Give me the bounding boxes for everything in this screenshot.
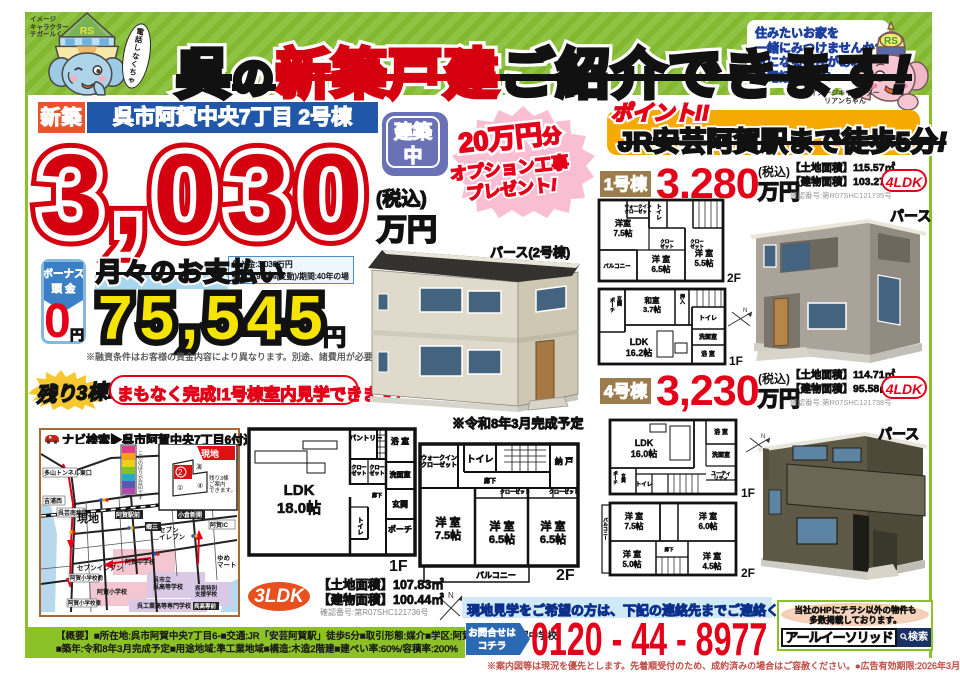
svg-text:ゼット: ゼット (351, 470, 366, 477)
svg-text:クローゼット: クローゼット (500, 489, 530, 496)
svg-text:阿賀小学校前: 阿賀小学校前 (70, 574, 104, 582)
svg-text:多山トンネル東口: 多山トンネル東口 (44, 469, 92, 477)
svg-text:ゼット: ゼット (690, 243, 704, 250)
svg-text:洋 室: 洋 室 (703, 551, 721, 561)
svg-text:ゆめ: ゆめ (217, 554, 231, 562)
svg-text:16.2帖: 16.2帖 (626, 347, 653, 358)
svg-text:クローゼット: クローゼット (549, 489, 579, 496)
svg-text:呉高等学校: 呉高等学校 (153, 583, 184, 591)
svg-text:納 戸: 納 戸 (555, 456, 573, 466)
svg-text:ボーナス: ボーナス (44, 267, 83, 280)
svg-text:現地: 現地 (201, 448, 219, 459)
svg-text:押入: 押入 (679, 293, 685, 305)
svg-text:浴 室: 浴 室 (701, 350, 715, 358)
svg-text:イレブン: イレブン (159, 532, 186, 541)
svg-text:洋 室: 洋 室 (489, 519, 514, 533)
svg-text:LDK: LDK (635, 438, 654, 448)
svg-text:6.5帖: 6.5帖 (651, 264, 670, 274)
svg-text:トイレ: トイレ (356, 517, 363, 535)
svg-text:呉高専前: 呉高専前 (194, 602, 217, 610)
svg-text:こののぼりが目印です: こののぼりが目印です (137, 450, 143, 501)
svg-text:ポーチ: ポーチ (613, 470, 619, 486)
svg-text:セブンイレブン: セブンイレブン (77, 563, 123, 572)
svg-text:バルコニー: バルコニー (603, 263, 631, 270)
svg-text:郷三: 郷三 (146, 523, 158, 531)
svg-text:吉浦西: 吉浦西 (44, 497, 62, 505)
svg-text:2: 2 (178, 468, 183, 477)
svg-text:バルコニー: バルコニー (476, 571, 516, 580)
svg-text:④: ④ (197, 482, 203, 490)
svg-text:マート: マート (217, 561, 237, 569)
svg-text:阿賀駅前: 阿賀駅前 (116, 511, 140, 519)
svg-text:お問合せは: お問合せは (468, 627, 516, 639)
svg-text:洋 室: 洋 室 (699, 511, 717, 521)
svg-text:トイレ: トイレ (636, 481, 653, 488)
svg-text:小倉新開: 小倉新開 (177, 511, 202, 519)
svg-text:呉市立: 呉市立 (153, 576, 171, 584)
svg-text:洋 室: 洋 室 (435, 515, 460, 529)
svg-text:支援学校: 支援学校 (194, 590, 218, 598)
svg-text:コチラ: コチラ (478, 641, 507, 652)
svg-text:LDK: LDK (630, 337, 649, 347)
svg-text:ウォークイン: ウォークイン (421, 454, 457, 462)
svg-text:7.5帖: 7.5帖 (613, 228, 632, 238)
svg-text:6.5帖: 6.5帖 (489, 532, 515, 546)
svg-text:廊下: 廊下 (372, 492, 382, 499)
svg-text:RS: RS (80, 26, 95, 37)
svg-text:バルコニー: バルコニー (603, 518, 609, 541)
svg-text:ゼット: ゼット (660, 243, 674, 250)
svg-text:阿賀中学校: 阿賀中学校 (125, 558, 156, 566)
svg-text:洋 室: 洋 室 (625, 511, 643, 521)
svg-text:浴 室: 浴 室 (714, 428, 728, 436)
svg-text:セブン: セブン (159, 525, 179, 534)
svg-text:洋 室: 洋 室 (652, 254, 670, 264)
svg-text:ポーチ: ポーチ (388, 524, 412, 534)
svg-text:16.0帖: 16.0帖 (631, 448, 658, 459)
svg-text:洋室: 洋室 (615, 218, 631, 228)
svg-text:4.5帖: 4.5帖 (702, 561, 721, 571)
svg-text:クロー: クロー (351, 464, 366, 471)
svg-text:トイレ: トイレ (655, 204, 662, 221)
svg-text:LDK: LDK (284, 482, 315, 499)
svg-text:パントリー: パントリー (350, 433, 383, 442)
svg-text:洗面室: 洗面室 (699, 333, 717, 341)
svg-text:できます。: できます。 (209, 487, 236, 494)
svg-text:N: N (448, 591, 454, 600)
svg-text:洗面室: 洗面室 (712, 451, 730, 459)
svg-text:クロー: クロー (369, 464, 384, 471)
svg-text:残り3棟: 残り3棟 (209, 474, 229, 482)
svg-text:廊下: 廊下 (665, 546, 674, 553)
svg-text:トイレ: トイレ (699, 315, 717, 322)
svg-text:ご案内: ご案内 (209, 480, 226, 488)
svg-text:トイレ: トイレ (466, 454, 493, 464)
svg-text:5.5帖: 5.5帖 (694, 258, 713, 268)
svg-text:洋 室: 洋 室 (540, 519, 565, 533)
svg-text:ポーチ: ポーチ (609, 297, 615, 314)
svg-text:呉工業高等専門学校: 呉工業高等専門学校 (137, 602, 192, 610)
svg-text:7.5帖: 7.5帖 (624, 521, 643, 531)
svg-text:現地: 現地 (77, 511, 99, 525)
svg-text:呉南特別: 呉南特別 (195, 584, 218, 592)
svg-text:玄関: 玄関 (392, 499, 408, 509)
svg-text:18.0帖: 18.0帖 (277, 499, 321, 517)
svg-text:6.5帖: 6.5帖 (540, 532, 566, 546)
svg-text:7.5帖: 7.5帖 (435, 528, 461, 542)
svg-text:3.7帖: 3.7帖 (643, 304, 661, 314)
svg-text:リティ: リティ (714, 476, 729, 482)
svg-text:クローゼット: クローゼット (421, 461, 457, 469)
svg-text:和室: 和室 (645, 295, 660, 305)
svg-text:阿賀小学校: 阿賀小学校 (97, 588, 128, 596)
svg-text:5.0帖: 5.0帖 (622, 559, 641, 569)
svg-text:洋 室: 洋 室 (695, 248, 713, 258)
svg-text:ゼット: ゼット (369, 470, 384, 477)
svg-text:6.0帖: 6.0帖 (698, 521, 717, 531)
svg-text:阿賀小学校東: 阿賀小学校東 (68, 599, 102, 607)
svg-text:①: ① (177, 484, 183, 492)
svg-text:玄関: 玄関 (621, 472, 627, 484)
svg-text:洋 室: 洋 室 (623, 549, 641, 559)
svg-text:洗面室: 洗面室 (390, 470, 411, 479)
svg-text:クローゼット: クローゼット (625, 208, 652, 215)
svg-text:浴 室: 浴 室 (391, 436, 409, 446)
svg-text:玄関: 玄関 (616, 295, 622, 307)
svg-text:N: N (743, 308, 747, 314)
svg-text:阿賀IC: 阿賀IC (210, 521, 229, 529)
svg-text:演: 演 (196, 463, 202, 471)
svg-text:廊下: 廊下 (484, 477, 496, 485)
